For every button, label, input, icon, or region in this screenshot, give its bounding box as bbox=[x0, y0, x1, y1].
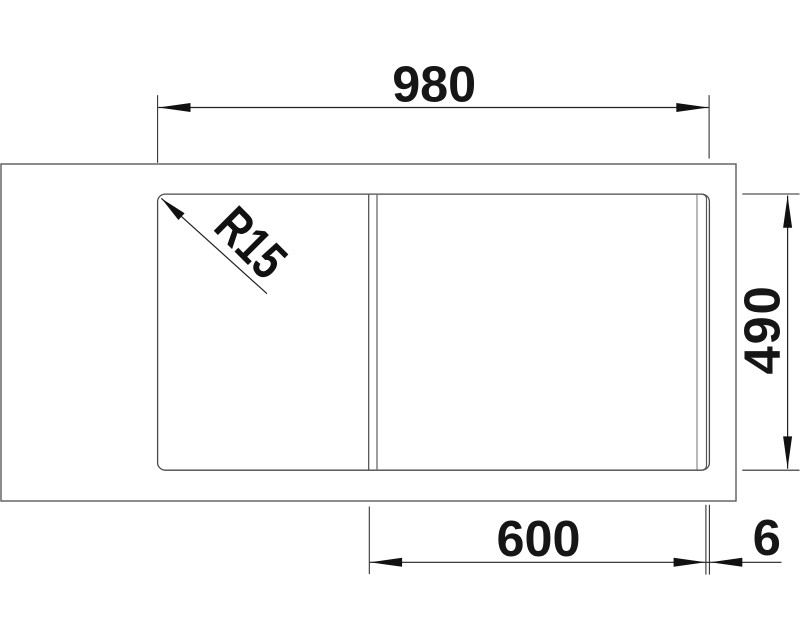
svg-text:490: 490 bbox=[734, 284, 791, 374]
svg-text:6: 6 bbox=[753, 509, 781, 566]
svg-text:600: 600 bbox=[497, 510, 581, 567]
svg-text:980: 980 bbox=[392, 56, 476, 113]
